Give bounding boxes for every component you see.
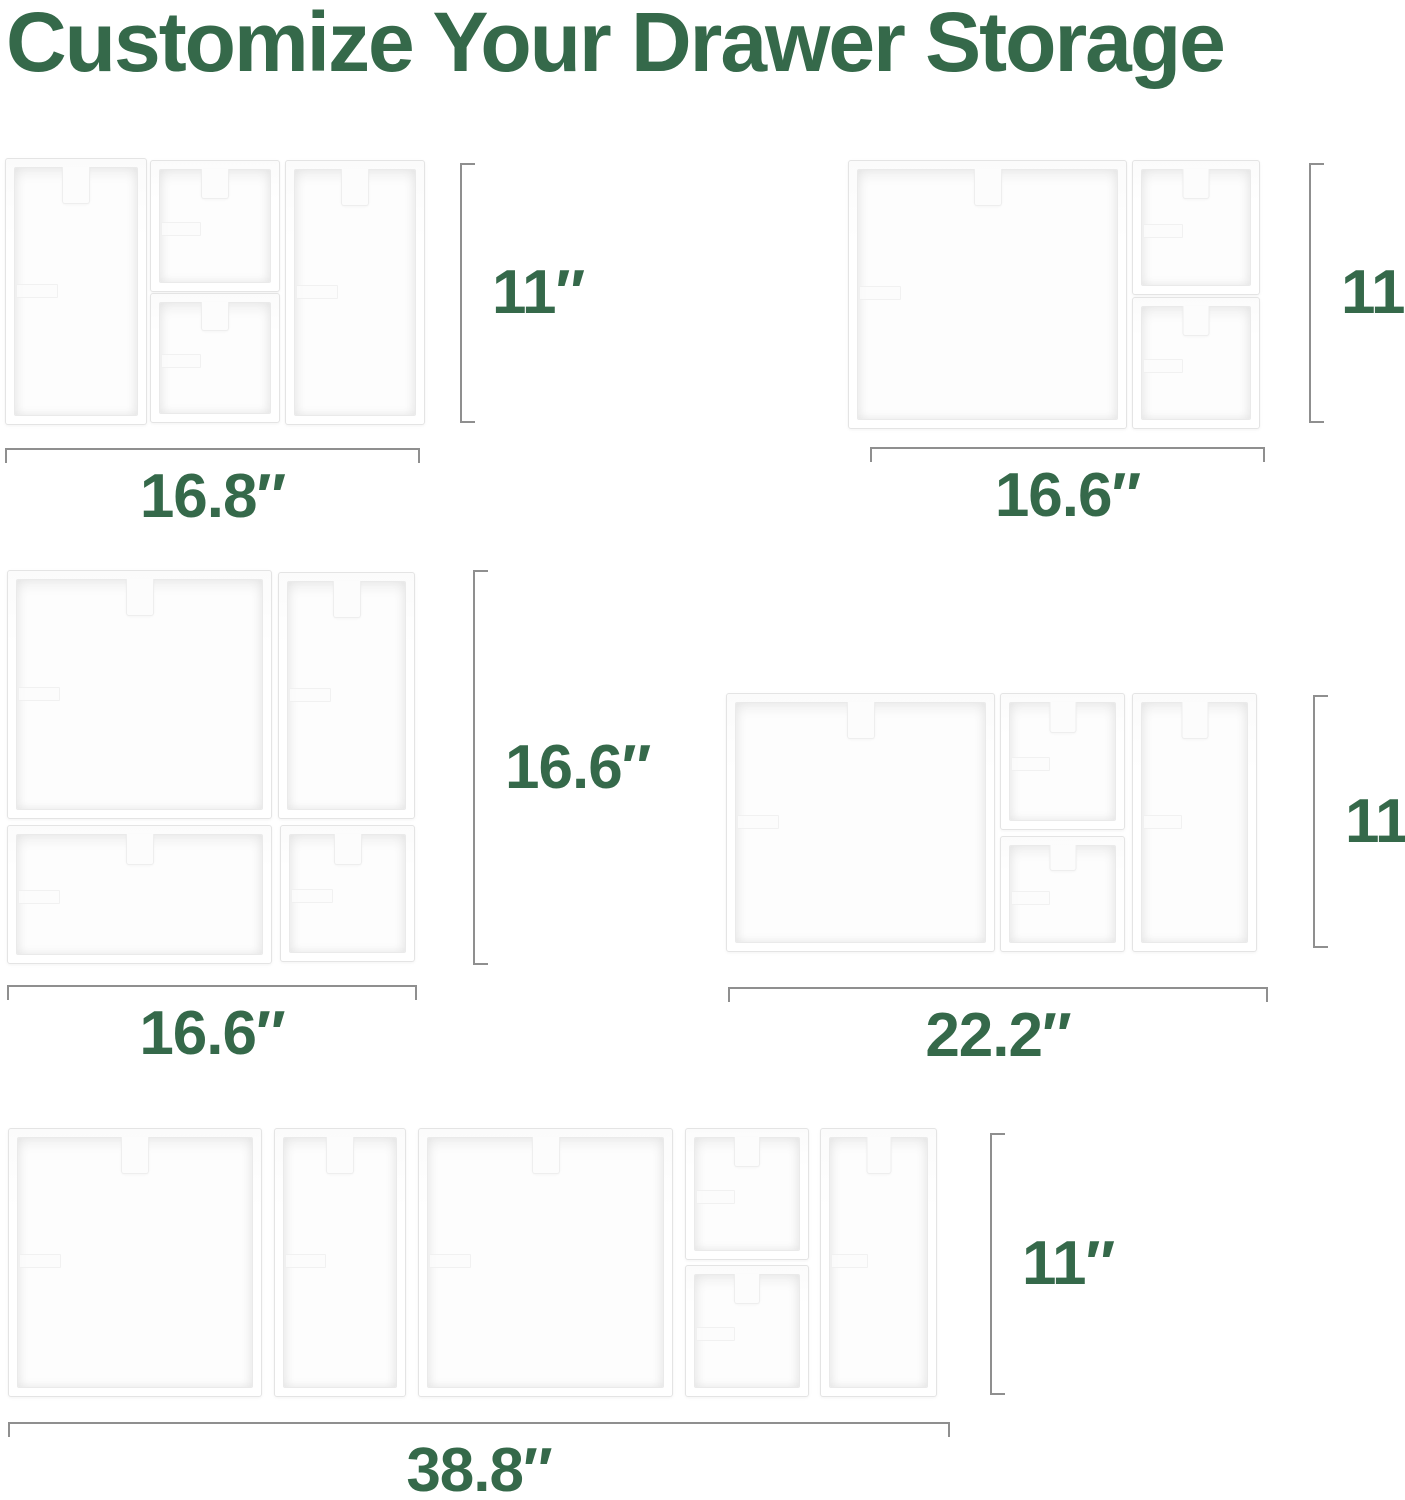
bin-divider-tab	[974, 169, 1002, 206]
bracket-tick	[728, 989, 730, 1002]
bin-divider-tab	[201, 169, 229, 199]
drawer-bin	[150, 293, 280, 423]
height-dimension-bracket	[473, 570, 475, 965]
bracket-tick	[870, 449, 872, 462]
bin-divider-tab	[866, 1137, 891, 1174]
bin-divider-tab	[1049, 702, 1076, 733]
bracket-tick	[418, 450, 420, 463]
bin-divider-tab	[734, 1274, 760, 1304]
drawer-bin	[7, 570, 272, 819]
bin-divider-tab	[326, 1137, 354, 1174]
height-dimension-label: 16.6″	[505, 737, 650, 799]
width-dimension-bracket	[5, 448, 420, 450]
width-dimension-bracket	[8, 1422, 950, 1424]
bin-divider-tab	[121, 1137, 149, 1174]
bracket-tick	[992, 1393, 1005, 1395]
height-dimension-label: 11″	[1022, 1233, 1114, 1295]
bin-divider-tab	[341, 169, 369, 206]
bin-divider-tab	[1183, 306, 1210, 336]
bin-seam-mark	[429, 1254, 471, 1268]
bin-divider-tab	[62, 167, 90, 204]
drawer-bin	[685, 1265, 809, 1397]
bin-seam-mark	[1143, 359, 1183, 373]
bin-seam-mark	[696, 1190, 735, 1204]
width-dimension-label: 16.6″	[995, 465, 1140, 527]
height-dimension-bracket	[460, 163, 462, 423]
height-dimension-label: 11″	[1345, 791, 1405, 853]
height-dimension-label: 11″	[492, 262, 584, 324]
bracket-tick	[475, 963, 488, 965]
bracket-tick	[7, 987, 9, 1000]
drawer-bin	[685, 1128, 809, 1260]
bracket-tick	[1315, 695, 1328, 697]
drawer-bin	[274, 1128, 406, 1397]
bin-seam-mark	[1143, 815, 1182, 829]
bin-seam-mark	[285, 1254, 326, 1268]
width-dimension-bracket	[870, 447, 1265, 449]
drawer-bin	[1000, 693, 1125, 830]
bracket-tick	[462, 421, 475, 423]
bracket-tick	[462, 163, 475, 165]
bin-seam-mark	[161, 354, 201, 368]
bin-seam-mark	[291, 889, 333, 903]
bin-seam-mark	[296, 285, 338, 299]
bin-seam-mark	[19, 1254, 61, 1268]
drawer-bin	[1132, 160, 1260, 295]
drawer-bin	[7, 825, 272, 964]
drawer-bin	[1132, 693, 1257, 952]
width-dimension-label: 38.8″	[406, 1440, 551, 1500]
bin-seam-mark	[18, 687, 60, 701]
bracket-tick	[5, 450, 7, 463]
bracket-tick	[1266, 989, 1268, 1002]
bin-seam-mark	[16, 284, 58, 298]
organizer-set-22.2-x-11	[726, 693, 1255, 950]
bin-seam-mark	[831, 1254, 868, 1268]
bracket-tick	[1315, 946, 1328, 948]
drawer-bin	[848, 160, 1127, 429]
bin-divider-tab	[532, 1137, 560, 1174]
bin-divider-tab	[1183, 169, 1210, 199]
drawer-bin	[1000, 836, 1125, 952]
width-dimension-label: 16.8″	[140, 466, 285, 528]
height-dimension-label: 11″	[1341, 262, 1405, 324]
bracket-tick	[475, 570, 488, 572]
bin-divider-tab	[201, 302, 229, 331]
drawer-bin	[280, 825, 415, 962]
bin-divider-tab	[333, 581, 361, 618]
drawer-bin	[5, 158, 147, 425]
bracket-tick	[992, 1133, 1005, 1135]
bin-divider-tab	[334, 834, 362, 865]
bin-seam-mark	[1011, 757, 1050, 771]
drawer-bin	[726, 693, 995, 952]
page-title: Customize Your Drawer Storage	[6, 0, 1224, 91]
bin-divider-tab	[734, 1137, 760, 1167]
bracket-tick	[1311, 163, 1324, 165]
height-dimension-bracket	[990, 1133, 992, 1395]
infographic-canvas: Customize Your Drawer Storage 11″16.8″11…	[0, 0, 1405, 1500]
organizer-set-38.8-x-11	[8, 1128, 935, 1395]
bin-seam-mark	[161, 222, 201, 236]
bin-seam-mark	[18, 890, 60, 904]
organizer-set-16.8-x-11	[5, 158, 423, 423]
drawer-bin	[820, 1128, 937, 1397]
height-dimension-bracket	[1313, 695, 1315, 948]
bin-seam-mark	[737, 815, 779, 829]
bracket-tick	[1263, 449, 1265, 462]
width-dimension-label: 16.6″	[139, 1003, 284, 1065]
height-dimension-bracket	[1309, 163, 1311, 423]
bin-divider-tab	[1049, 845, 1076, 871]
bin-divider-tab	[126, 579, 154, 616]
drawer-bin	[278, 572, 415, 819]
drawer-bin	[285, 160, 425, 425]
organizer-set-16.6-x-16.6	[7, 570, 413, 962]
width-dimension-label: 22.2″	[925, 1005, 1070, 1067]
drawer-bin	[8, 1128, 262, 1397]
bin-divider-tab	[847, 702, 875, 739]
bin-divider-tab	[126, 834, 154, 865]
organizer-set-16.6-x-11	[848, 160, 1258, 427]
bin-seam-mark	[1143, 224, 1183, 238]
bracket-tick	[948, 1424, 950, 1437]
width-dimension-bracket	[728, 987, 1268, 989]
bin-divider-tab	[1181, 702, 1208, 739]
bracket-tick	[8, 1424, 10, 1437]
drawer-bin	[150, 160, 280, 292]
bin-seam-mark	[859, 286, 901, 300]
bracket-tick	[415, 987, 417, 1000]
bin-seam-mark	[1011, 891, 1050, 905]
bin-seam-mark	[696, 1327, 735, 1341]
bracket-tick	[1311, 421, 1324, 423]
bin-seam-mark	[289, 688, 331, 702]
drawer-bin	[1132, 297, 1260, 429]
drawer-bin	[418, 1128, 673, 1397]
width-dimension-bracket	[7, 985, 417, 987]
